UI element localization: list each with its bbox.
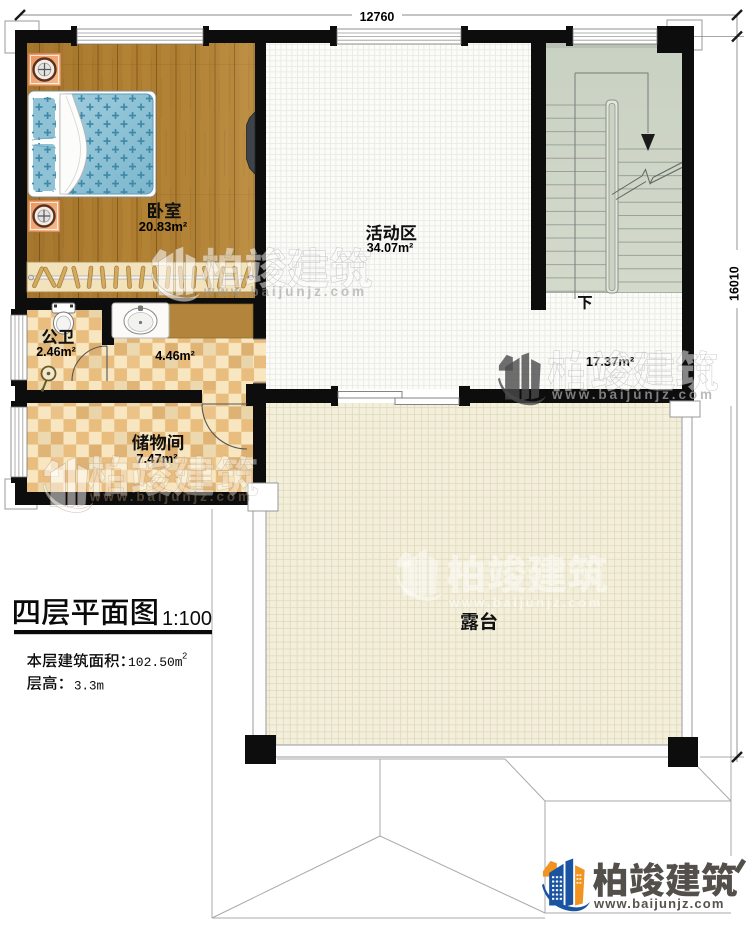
svg-text:34.07m²: 34.07m² [367, 241, 414, 255]
svg-text:www.baijunjz.com: www.baijunjz.com [89, 489, 253, 504]
svg-text:20.83m²: 20.83m² [139, 219, 188, 234]
svg-text:www.baijunjz.com: www.baijunjz.com [551, 387, 715, 402]
svg-text:www.baijunjz.com: www.baijunjz.com [203, 284, 367, 299]
svg-text:4.46m²: 4.46m² [155, 349, 195, 363]
svg-text:2: 2 [182, 652, 187, 662]
svg-text:www.baijunjz.com: www.baijunjz.com [593, 896, 725, 911]
svg-text:www.baijunjz.com: www.baijunjz.com [448, 595, 603, 610]
svg-text:12760: 12760 [360, 10, 395, 24]
svg-text:16010: 16010 [728, 266, 742, 301]
svg-text:1:100: 1:100 [162, 608, 212, 630]
svg-text:3.3m: 3.3m [74, 680, 104, 694]
svg-text:102.50m: 102.50m [128, 655, 183, 670]
svg-text:2.46m²: 2.46m² [36, 345, 76, 359]
